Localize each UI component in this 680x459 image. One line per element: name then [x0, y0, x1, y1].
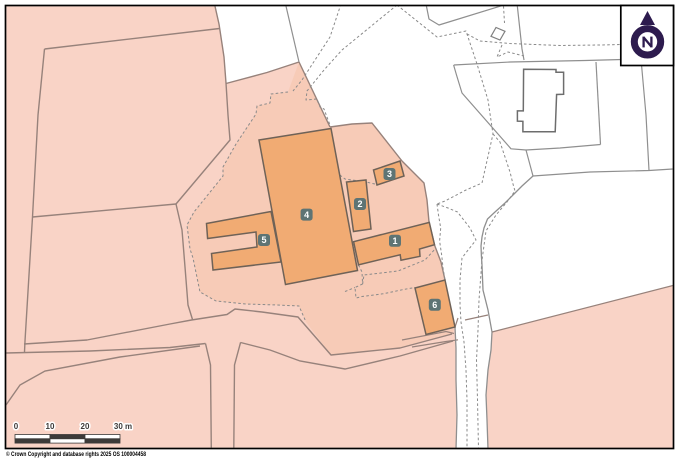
svg-text:5: 5	[261, 235, 266, 245]
svg-text:3: 3	[387, 169, 392, 179]
svg-text:2: 2	[357, 199, 362, 209]
svg-text:1: 1	[392, 236, 397, 246]
svg-text:10: 10	[46, 422, 55, 431]
svg-text:4: 4	[304, 210, 309, 220]
svg-text:20: 20	[81, 422, 90, 431]
svg-text:30 m: 30 m	[114, 422, 132, 431]
svg-text:© Crown Copyright and database: © Crown Copyright and database rights 20…	[6, 451, 147, 458]
svg-text:6: 6	[432, 300, 437, 310]
svg-text:0: 0	[14, 422, 19, 431]
